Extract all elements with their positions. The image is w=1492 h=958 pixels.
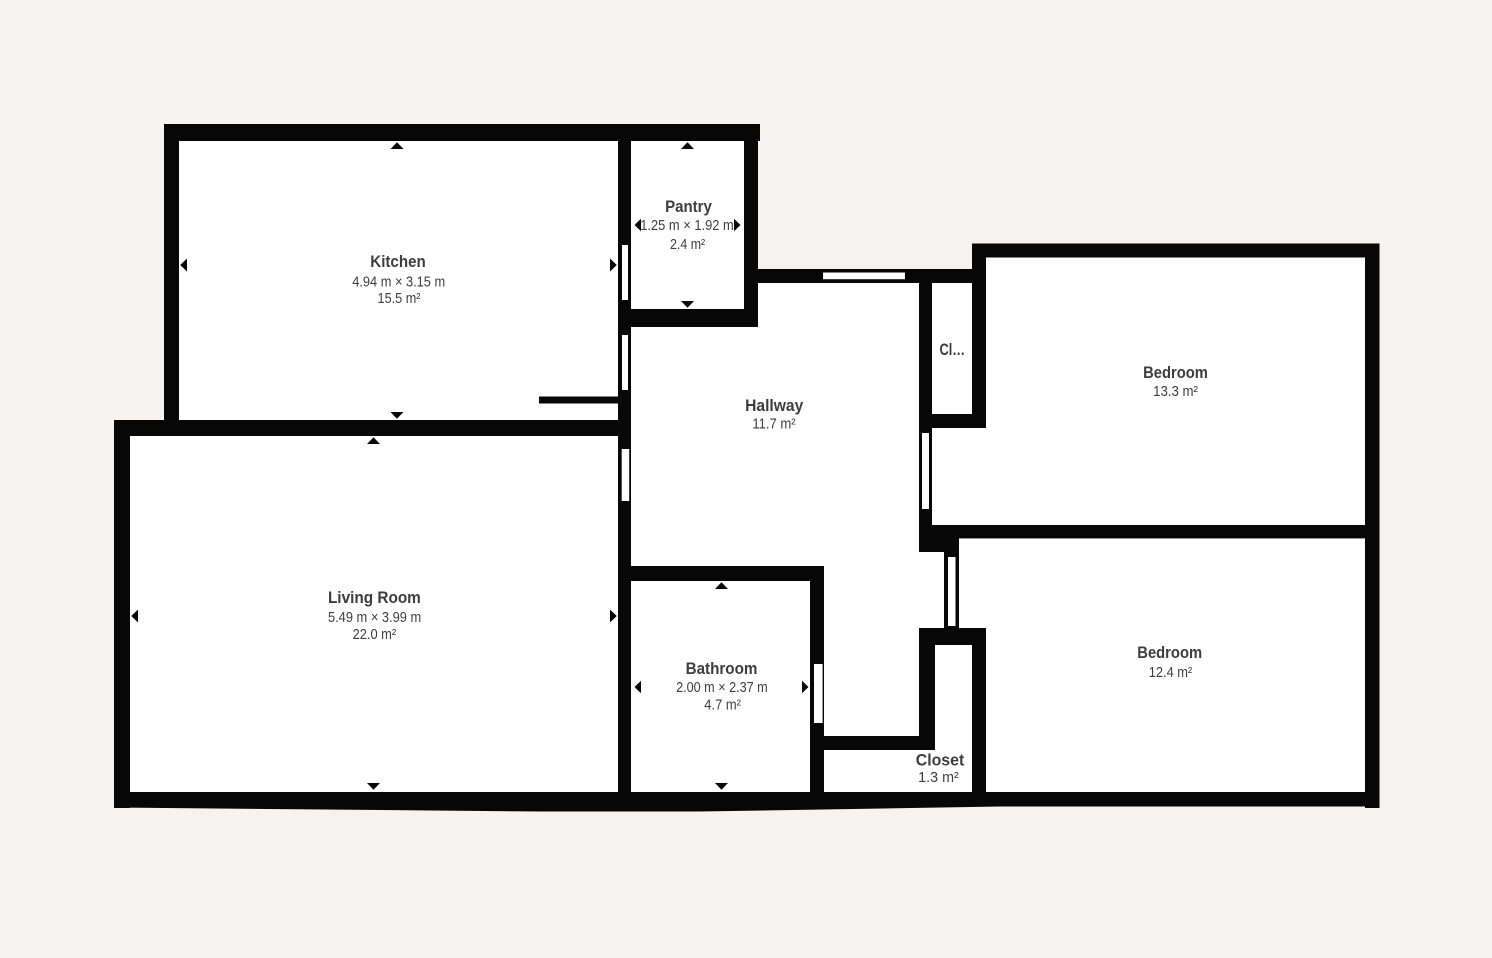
svg-text:Cl…: Cl… bbox=[940, 340, 966, 359]
svg-text:Closet: Closet bbox=[916, 751, 965, 770]
svg-text:13.3 m²: 13.3 m² bbox=[1153, 384, 1198, 400]
svg-text:1.25 m × 1.92 m: 1.25 m × 1.92 m bbox=[640, 218, 734, 234]
svg-text:22.0 m²: 22.0 m² bbox=[353, 627, 397, 643]
svg-text:Living Room: Living Room bbox=[328, 588, 421, 607]
svg-text:Bedroom: Bedroom bbox=[1137, 643, 1202, 662]
svg-text:15.5 m²: 15.5 m² bbox=[378, 291, 421, 307]
svg-text:1.3 m²: 1.3 m² bbox=[918, 770, 959, 786]
svg-text:2.4 m²: 2.4 m² bbox=[670, 237, 705, 253]
svg-text:Bathroom: Bathroom bbox=[686, 659, 758, 678]
svg-text:4.94 m × 3.15 m: 4.94 m × 3.15 m bbox=[352, 275, 445, 291]
svg-text:12.4 m²: 12.4 m² bbox=[1149, 665, 1193, 681]
svg-text:Pantry: Pantry bbox=[665, 197, 712, 216]
svg-text:11.7 m²: 11.7 m² bbox=[752, 417, 796, 433]
svg-text:Kitchen: Kitchen bbox=[370, 252, 425, 271]
svg-text:4.7 m²: 4.7 m² bbox=[704, 698, 741, 714]
svg-text:2.00 m × 2.37 m: 2.00 m × 2.37 m bbox=[676, 680, 768, 696]
svg-text:Hallway: Hallway bbox=[745, 396, 804, 415]
svg-text:Bedroom: Bedroom bbox=[1143, 363, 1208, 382]
svg-text:5.49 m × 3.99 m: 5.49 m × 3.99 m bbox=[328, 610, 421, 626]
